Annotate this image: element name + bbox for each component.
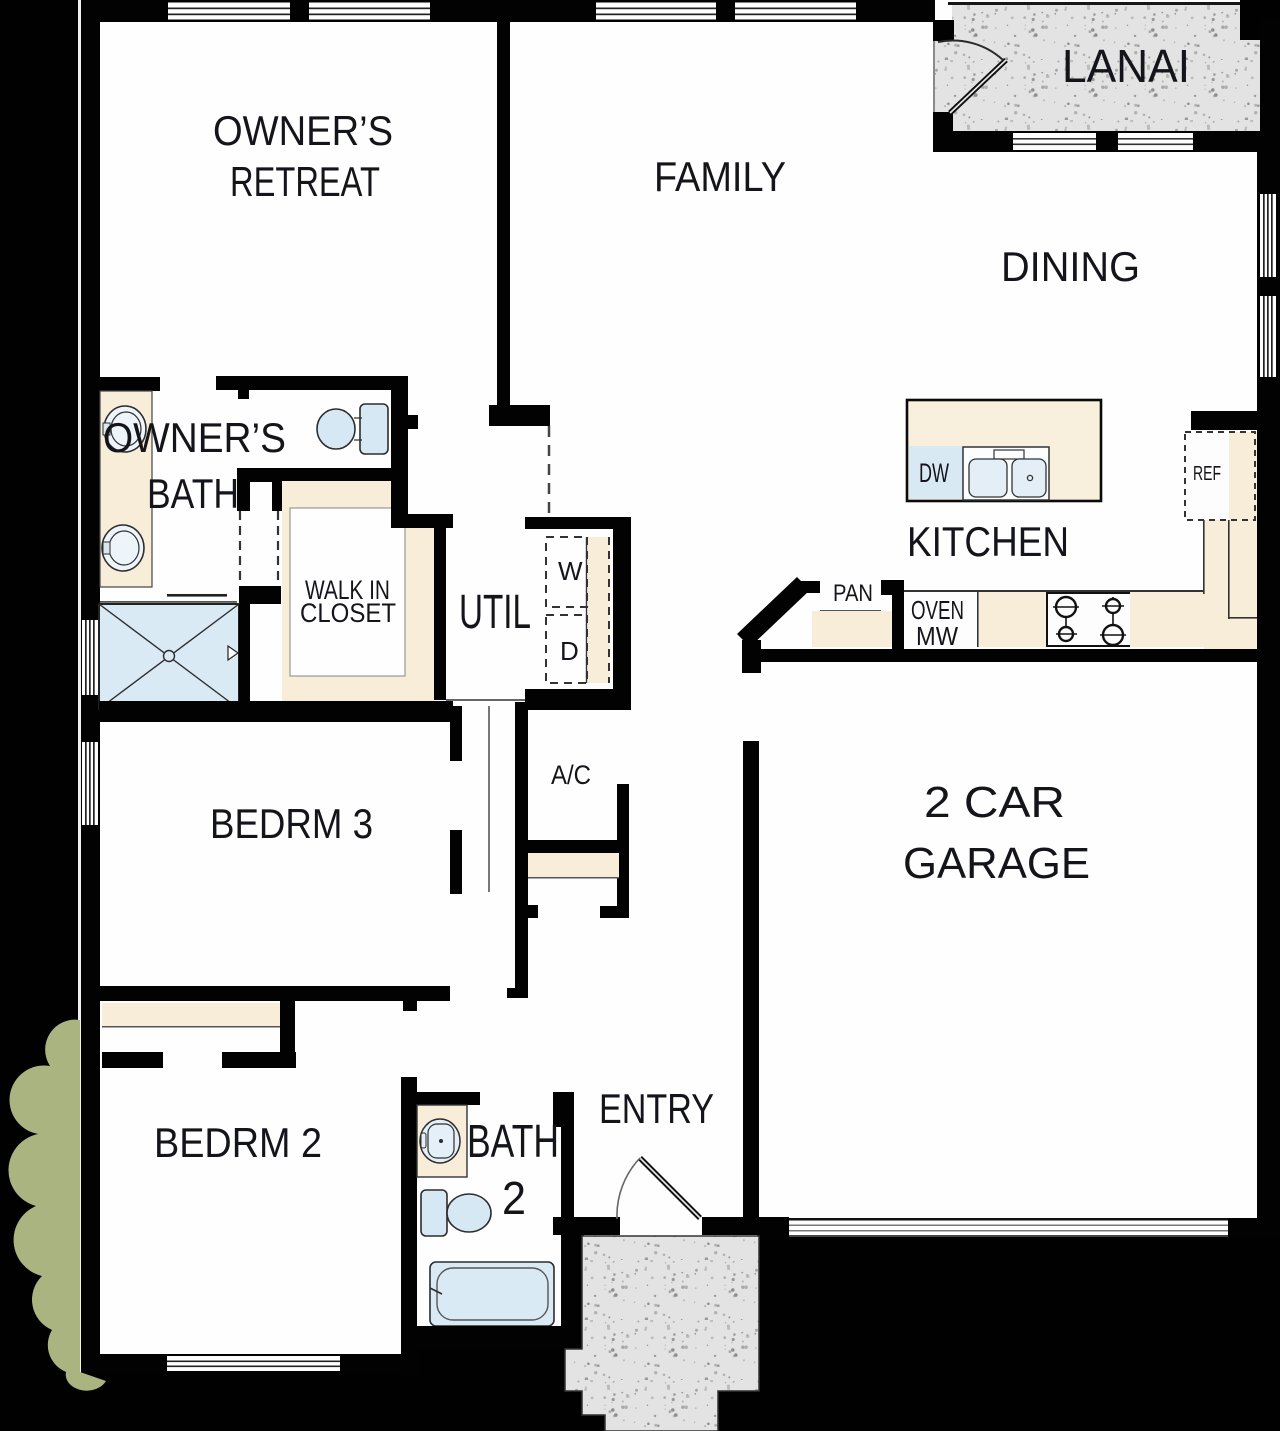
svg-text:OWNER’S: OWNER’S xyxy=(103,414,286,461)
svg-text:UTIL: UTIL xyxy=(459,586,531,639)
svg-text:BATH: BATH xyxy=(467,1115,559,1167)
svg-text:DW: DW xyxy=(919,458,949,488)
svg-text:ENTRY: ENTRY xyxy=(599,1085,714,1132)
svg-text:2: 2 xyxy=(502,1172,526,1224)
svg-text:CLOSET: CLOSET xyxy=(300,598,396,628)
svg-text:2 CAR: 2 CAR xyxy=(924,778,1065,827)
svg-text:GARAGE: GARAGE xyxy=(903,839,1090,888)
svg-text:REF: REF xyxy=(1193,463,1221,485)
svg-text:MW: MW xyxy=(916,621,958,651)
svg-text:A/C: A/C xyxy=(551,760,591,790)
svg-text:BEDRM 2: BEDRM 2 xyxy=(154,1119,322,1166)
svg-text:D: D xyxy=(560,636,579,666)
svg-text:FAMILY: FAMILY xyxy=(654,153,786,200)
svg-text:W: W xyxy=(558,556,583,586)
svg-text:RETREAT: RETREAT xyxy=(230,158,380,205)
svg-text:BATH: BATH xyxy=(147,470,239,517)
svg-text:DINING: DINING xyxy=(1001,243,1140,290)
svg-text:KITCHEN: KITCHEN xyxy=(907,518,1069,565)
svg-text:BEDRM 3: BEDRM 3 xyxy=(210,800,373,847)
svg-text:PAN: PAN xyxy=(833,580,873,607)
svg-text:LANAI: LANAI xyxy=(1062,40,1190,92)
svg-text:OWNER’S: OWNER’S xyxy=(213,107,393,154)
